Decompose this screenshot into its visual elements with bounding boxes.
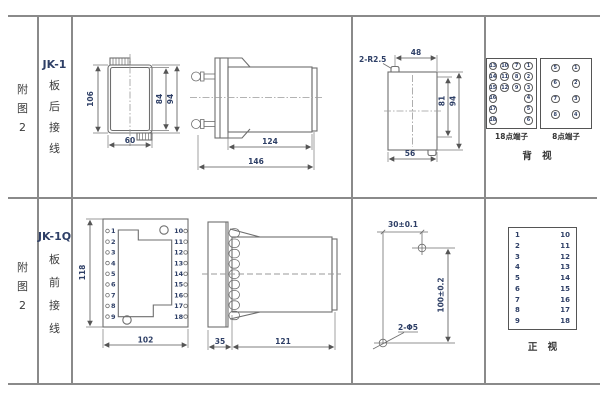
radius-leader [383, 64, 392, 69]
table-row: 918 [509, 318, 576, 325]
dim-48-label: 48 [411, 48, 421, 57]
svg-text:13: 13 [174, 259, 183, 267]
terminal-pin: 11 [500, 72, 509, 81]
terminal-pin: 5 [551, 64, 560, 73]
dim-118-label: 118 [78, 265, 87, 281]
wiring-type-char: 线 [49, 142, 60, 155]
jk1-side-view-drawing: 124 146 [188, 48, 328, 172]
table-top-border [8, 15, 600, 17]
table-mid-border [8, 197, 597, 199]
svg-text:16: 16 [174, 291, 184, 299]
wiring-type-char: 后 [49, 100, 60, 113]
dim-35-label: 35 [215, 337, 225, 346]
centerline [384, 75, 443, 147]
terminal-18-label: 18点端子 [484, 131, 539, 142]
dim-81-label: 81 [438, 96, 447, 106]
svg-text:8: 8 [111, 302, 116, 310]
svg-text:17: 17 [174, 302, 183, 310]
terminal-pin: 1 [572, 64, 581, 73]
front-terminal-table: 110 211 312 413 514 615 716 817 918 [508, 227, 577, 330]
dim-124-label: 124 [262, 137, 278, 146]
table-row: 413 [509, 264, 576, 271]
terminal-pin: 2 [524, 72, 533, 81]
svg-text:10: 10 [174, 227, 184, 235]
terminal-pin: 14 [489, 72, 498, 81]
table-row: 615 [509, 286, 576, 293]
terminal-pin: 4 [524, 94, 533, 103]
terminal-pin: 9 [512, 83, 521, 92]
jk1q-side-outline [208, 222, 337, 327]
terminal-pin: 2 [572, 79, 581, 88]
model-label-top: JK-1 板 后 接 线 [39, 58, 70, 155]
terminal-pin: 3 [524, 83, 533, 92]
terminal-pin: 10 [500, 62, 509, 71]
wiring-type-char: 板 [49, 253, 60, 266]
figure-label-char: 附 [17, 261, 28, 274]
jk1q-front-view-drawing: 1 2 3 4 5 6 7 8 9 10 11 12 13 14 15 16 1… [74, 214, 200, 350]
terminal-pin: 12 [500, 83, 509, 92]
dim-94-label: 94 [166, 94, 175, 104]
figure-label-char: 附 [17, 83, 28, 96]
manual-figure-page: 附 图 2 JK-1 板 后 接 线 附 图 2 JK-1Q 板 前 接 线 [0, 0, 600, 400]
terminal-8-label: 8点端子 [540, 131, 592, 142]
model-name: JK-1 [43, 58, 67, 71]
model-label-bottom: JK-1Q 板 前 接 线 [37, 230, 72, 335]
front-view-label: 正 视 [500, 339, 585, 353]
dim-121-label: 121 [275, 337, 291, 346]
svg-text:2: 2 [111, 238, 116, 246]
extension-lines [86, 219, 188, 348]
dim-30-label: 30±0.1 [388, 220, 418, 229]
table-row: 514 [509, 275, 576, 282]
svg-text:18: 18 [174, 313, 184, 321]
table-row: 817 [509, 307, 576, 314]
table-vline-3 [351, 15, 353, 384]
terminal-pin: 7 [512, 62, 521, 71]
dim-100-label: 100±0.2 [437, 277, 446, 312]
terminal-pin: 8 [512, 72, 521, 81]
svg-text:12: 12 [174, 249, 183, 257]
terminal-pin: 18 [489, 116, 498, 125]
svg-text:4: 4 [111, 259, 116, 267]
svg-text:5: 5 [111, 270, 116, 278]
table-row: 110 [509, 232, 576, 239]
dim-84-label: 84 [155, 94, 164, 104]
terminal-pin: 8 [551, 110, 560, 119]
terminal-screws [192, 72, 216, 129]
svg-text:14: 14 [174, 270, 184, 278]
svg-text:6: 6 [111, 281, 116, 289]
dim-102-label: 102 [138, 336, 154, 345]
jk1q-side-view-drawing: 35 121 [200, 214, 345, 354]
wiring-type-char: 接 [49, 299, 60, 312]
terminal-pin: 6 [551, 79, 560, 88]
svg-text:7: 7 [111, 291, 116, 299]
hole-diameter-label: 2-Φ5 [398, 323, 418, 332]
wiring-type-char: 前 [49, 276, 60, 289]
table-row: 312 [509, 254, 576, 261]
dim-94-label: 94 [449, 96, 458, 106]
terminal-pin: 1 [524, 62, 533, 71]
svg-text:1: 1 [111, 227, 116, 235]
right-terminal-numbers: 10 11 12 13 14 15 16 17 18 [174, 227, 184, 321]
svg-text:15: 15 [174, 281, 184, 289]
dim-60-label: 60 [125, 136, 135, 145]
terminal-18-box: 13 10 7 1 14 11 8 2 15 12 9 3 16 4 17 5 … [486, 58, 537, 129]
wiring-type-char: 接 [49, 121, 60, 134]
svg-text:9: 9 [111, 313, 116, 321]
extension-lines [208, 312, 335, 350]
terminal-pin: 13 [489, 62, 498, 71]
figure-label-char: 图 [17, 102, 28, 115]
terminal-pin: 17 [489, 105, 498, 114]
dim-56-label: 56 [405, 149, 415, 158]
table-bottom-border [8, 383, 600, 385]
figure-label-bottom: 附 图 2 [8, 261, 37, 312]
dim-146-label: 146 [248, 157, 264, 166]
terminal-pin: 7 [551, 95, 560, 104]
radius-label: 2-R2.5 [359, 55, 386, 64]
wiring-type-char: 线 [49, 322, 60, 335]
back-view-label: 背 视 [484, 148, 590, 162]
figure-label-char: 2 [19, 121, 26, 134]
figure-label-top: 附 图 2 [8, 83, 37, 134]
model-name: JK-1Q [38, 230, 71, 243]
svg-text:3: 3 [111, 249, 116, 257]
panel-cutout-drawing: 2-R2.5 48 81 94 56 [355, 44, 470, 166]
terminal-pin: 4 [572, 110, 581, 119]
terminal-pin: 5 [524, 105, 533, 114]
terminal-8-box: 5 1 6 2 7 3 8 4 [540, 58, 592, 129]
drill-pattern-drawing: 30±0.1 100±0.2 2-Φ5 [360, 215, 470, 355]
terminal-pin: 6 [524, 116, 533, 125]
table-row: 716 [509, 297, 576, 304]
left-terminal-numbers: 1 2 3 4 5 6 7 8 9 [111, 227, 116, 321]
terminal-pin: 3 [572, 95, 581, 104]
figure-label-char: 图 [17, 280, 28, 293]
jk1-side-outline [215, 58, 317, 138]
jk1-front-view-drawing: 106 84 94 60 [84, 45, 202, 160]
dimension-lines [390, 58, 460, 159]
figure-label-char: 2 [19, 299, 26, 312]
mount-tab-hatch [113, 58, 151, 139]
svg-text:11: 11 [174, 238, 184, 246]
table-row: 211 [509, 243, 576, 250]
wiring-type-char: 板 [49, 79, 60, 92]
terminal-pin: 16 [489, 94, 498, 103]
dim-106-label: 106 [86, 91, 95, 107]
terminal-pin: 15 [489, 83, 498, 92]
